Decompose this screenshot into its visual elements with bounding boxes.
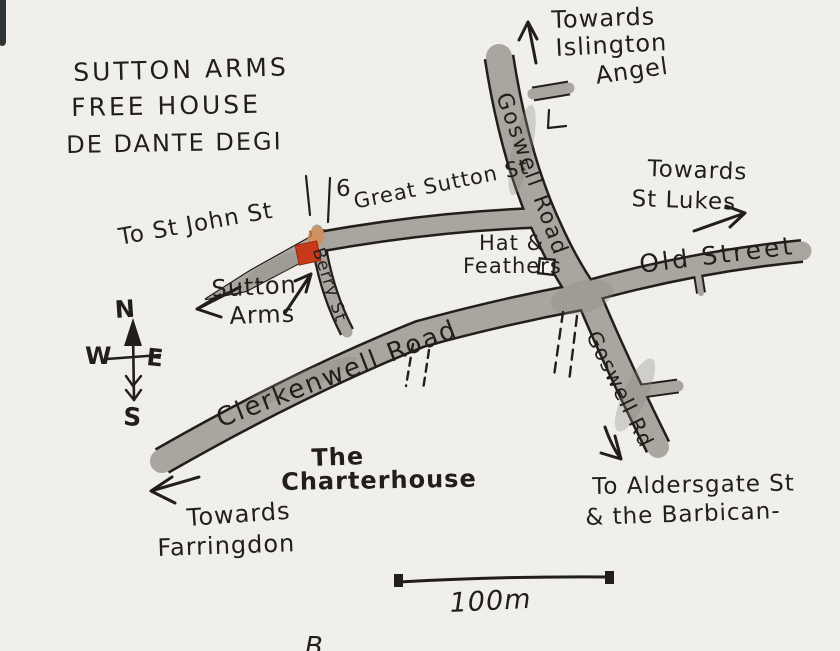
sutton-arms-label-line2: Arms	[229, 302, 296, 328]
direction-islington-line1: Towards	[551, 4, 656, 32]
road-clerkenwell-road	[162, 297, 580, 461]
hat-feathers-label-line2: Feathers	[463, 256, 562, 277]
arrow-aldersgate	[601, 427, 621, 459]
compass-north: N	[114, 297, 137, 322]
compass-west: W	[85, 344, 112, 368]
compass-east: E	[145, 345, 165, 371]
map-title-line1: SUTTON ARMS	[73, 54, 289, 85]
building-number: 6	[336, 178, 352, 201]
compass-south: S	[123, 404, 143, 430]
dashed-line	[554, 312, 563, 376]
map-title-line2: FREE HOUSE	[71, 92, 261, 120]
alley-line-right	[328, 178, 330, 222]
map-title-line3: DE DANTE DEGI	[66, 129, 283, 157]
place-charterhouse-line2: Charterhouse	[281, 467, 477, 494]
direction-farringdon-line2: Farringdon	[157, 531, 296, 560]
arrow-farringdon	[151, 477, 199, 503]
side-street-tick	[548, 110, 566, 128]
road-stub-upper	[533, 88, 569, 94]
alley-line-left	[306, 176, 310, 215]
direction-st-lukes-line1: Towards	[647, 158, 748, 184]
direction-aldersgate-line1: To Aldersgate St	[592, 472, 795, 499]
dashed-line	[569, 316, 577, 382]
arrow-islington	[519, 22, 537, 63]
scale-label: 100m	[449, 586, 532, 617]
direction-farringdon-line1: Towards	[186, 499, 291, 530]
direction-st-lukes-line2: St Lukes	[631, 188, 736, 215]
stray-pen-mark: B	[305, 634, 324, 651]
sutton-arms-label-line1: Sutton	[211, 273, 297, 301]
scan-edge-mark	[0, 0, 6, 46]
hat-feathers-label-line1: Hat &	[479, 233, 544, 254]
hand-drawn-map: SUTTON ARMS FREE HOUSE DE DANTE DEGI Tow…	[0, 0, 840, 651]
